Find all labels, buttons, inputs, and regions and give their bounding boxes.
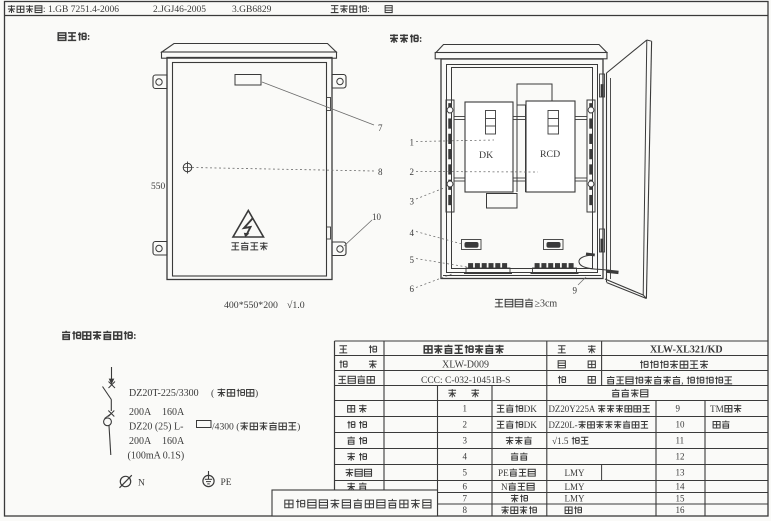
svg-text::: : <box>419 34 422 45</box>
svg-text::: : <box>133 331 136 342</box>
svg-text:10: 10 <box>372 212 382 222</box>
svg-text:5: 5 <box>410 255 415 265</box>
svg-text:2: 2 <box>463 420 468 430</box>
svg-text::: : <box>367 5 370 15</box>
svg-text:8: 8 <box>378 167 383 177</box>
svg-text:8: 8 <box>463 505 468 515</box>
svg-text:(100mA 0.1S): (100mA 0.1S) <box>128 451 185 462</box>
svg-text:DK: DK <box>479 150 493 161</box>
svg-text:550: 550 <box>151 182 166 192</box>
svg-text:N: N <box>501 482 508 492</box>
svg-text:12: 12 <box>676 452 685 462</box>
svg-text:XLW-XL321/KD: XLW-XL321/KD <box>650 345 723 356</box>
svg-text:160A: 160A <box>162 407 185 418</box>
svg-text::: : <box>43 4 46 14</box>
svg-text:√1.5: √1.5 <box>552 436 569 446</box>
svg-text:TM: TM <box>710 404 724 414</box>
svg-text:3: 3 <box>463 436 468 446</box>
svg-text:): ) <box>297 422 300 433</box>
svg-text:DK: DK <box>524 420 538 430</box>
svg-text:400*550*200: 400*550*200 <box>224 300 278 311</box>
svg-text:5: 5 <box>463 468 468 478</box>
svg-text:200A: 200A <box>129 407 152 418</box>
svg-text:1.GB 7251.4-2006: 1.GB 7251.4-2006 <box>48 5 119 15</box>
svg-text:,: , <box>681 377 683 387</box>
svg-text:RCD: RCD <box>540 149 560 160</box>
svg-text:7: 7 <box>378 123 383 133</box>
svg-text:DZ20 (25) L-: DZ20 (25) L- <box>129 422 183 433</box>
svg-text:200A: 200A <box>129 436 152 447</box>
svg-text:CCC: C-032-10451B-S: CCC: C-032-10451B-S <box>421 376 510 386</box>
svg-text:4: 4 <box>410 228 415 238</box>
svg-text:1: 1 <box>410 138 415 148</box>
svg-text:7: 7 <box>463 493 468 503</box>
svg-text:XLW-D009: XLW-D009 <box>442 360 489 371</box>
svg-text:2.JGJ46-2005: 2.JGJ46-2005 <box>153 5 206 15</box>
svg-text:DZ20L-: DZ20L- <box>549 420 578 430</box>
svg-text:160A: 160A <box>162 436 185 447</box>
svg-text:16: 16 <box>676 505 686 515</box>
svg-text:15: 15 <box>676 493 686 503</box>
svg-text:): ) <box>255 388 258 399</box>
svg-text:11: 11 <box>676 436 685 446</box>
svg-text:4: 4 <box>463 452 468 462</box>
svg-text:N: N <box>138 479 145 489</box>
svg-text:9: 9 <box>573 286 578 296</box>
svg-text:6: 6 <box>463 482 468 492</box>
svg-text:DZ20T-225/3300: DZ20T-225/3300 <box>129 388 199 399</box>
svg-text:10: 10 <box>676 420 686 430</box>
svg-text:/4300 (: /4300 ( <box>212 422 239 433</box>
svg-text:3.GB6829: 3.GB6829 <box>232 5 272 15</box>
svg-text:2: 2 <box>410 167 415 177</box>
svg-text:1: 1 <box>463 404 468 414</box>
svg-text:LMY: LMY <box>565 468 586 478</box>
svg-text:LMY: LMY <box>565 494 586 504</box>
svg-text:LMY: LMY <box>565 482 586 492</box>
svg-text::: : <box>87 32 90 43</box>
svg-text:(: ( <box>211 388 214 399</box>
svg-text:13: 13 <box>676 468 686 478</box>
svg-text:3: 3 <box>410 197 415 207</box>
svg-text:DZ20Y225A: DZ20Y225A <box>549 404 596 414</box>
svg-text:PE: PE <box>221 478 232 488</box>
svg-text:PE: PE <box>498 468 509 478</box>
svg-text:9: 9 <box>676 404 681 414</box>
svg-text:≥3cm: ≥3cm <box>535 299 558 310</box>
svg-text:√1.0: √1.0 <box>287 300 305 311</box>
svg-text:14: 14 <box>676 482 686 492</box>
svg-text:DK: DK <box>524 404 538 414</box>
svg-text:6: 6 <box>410 284 415 294</box>
